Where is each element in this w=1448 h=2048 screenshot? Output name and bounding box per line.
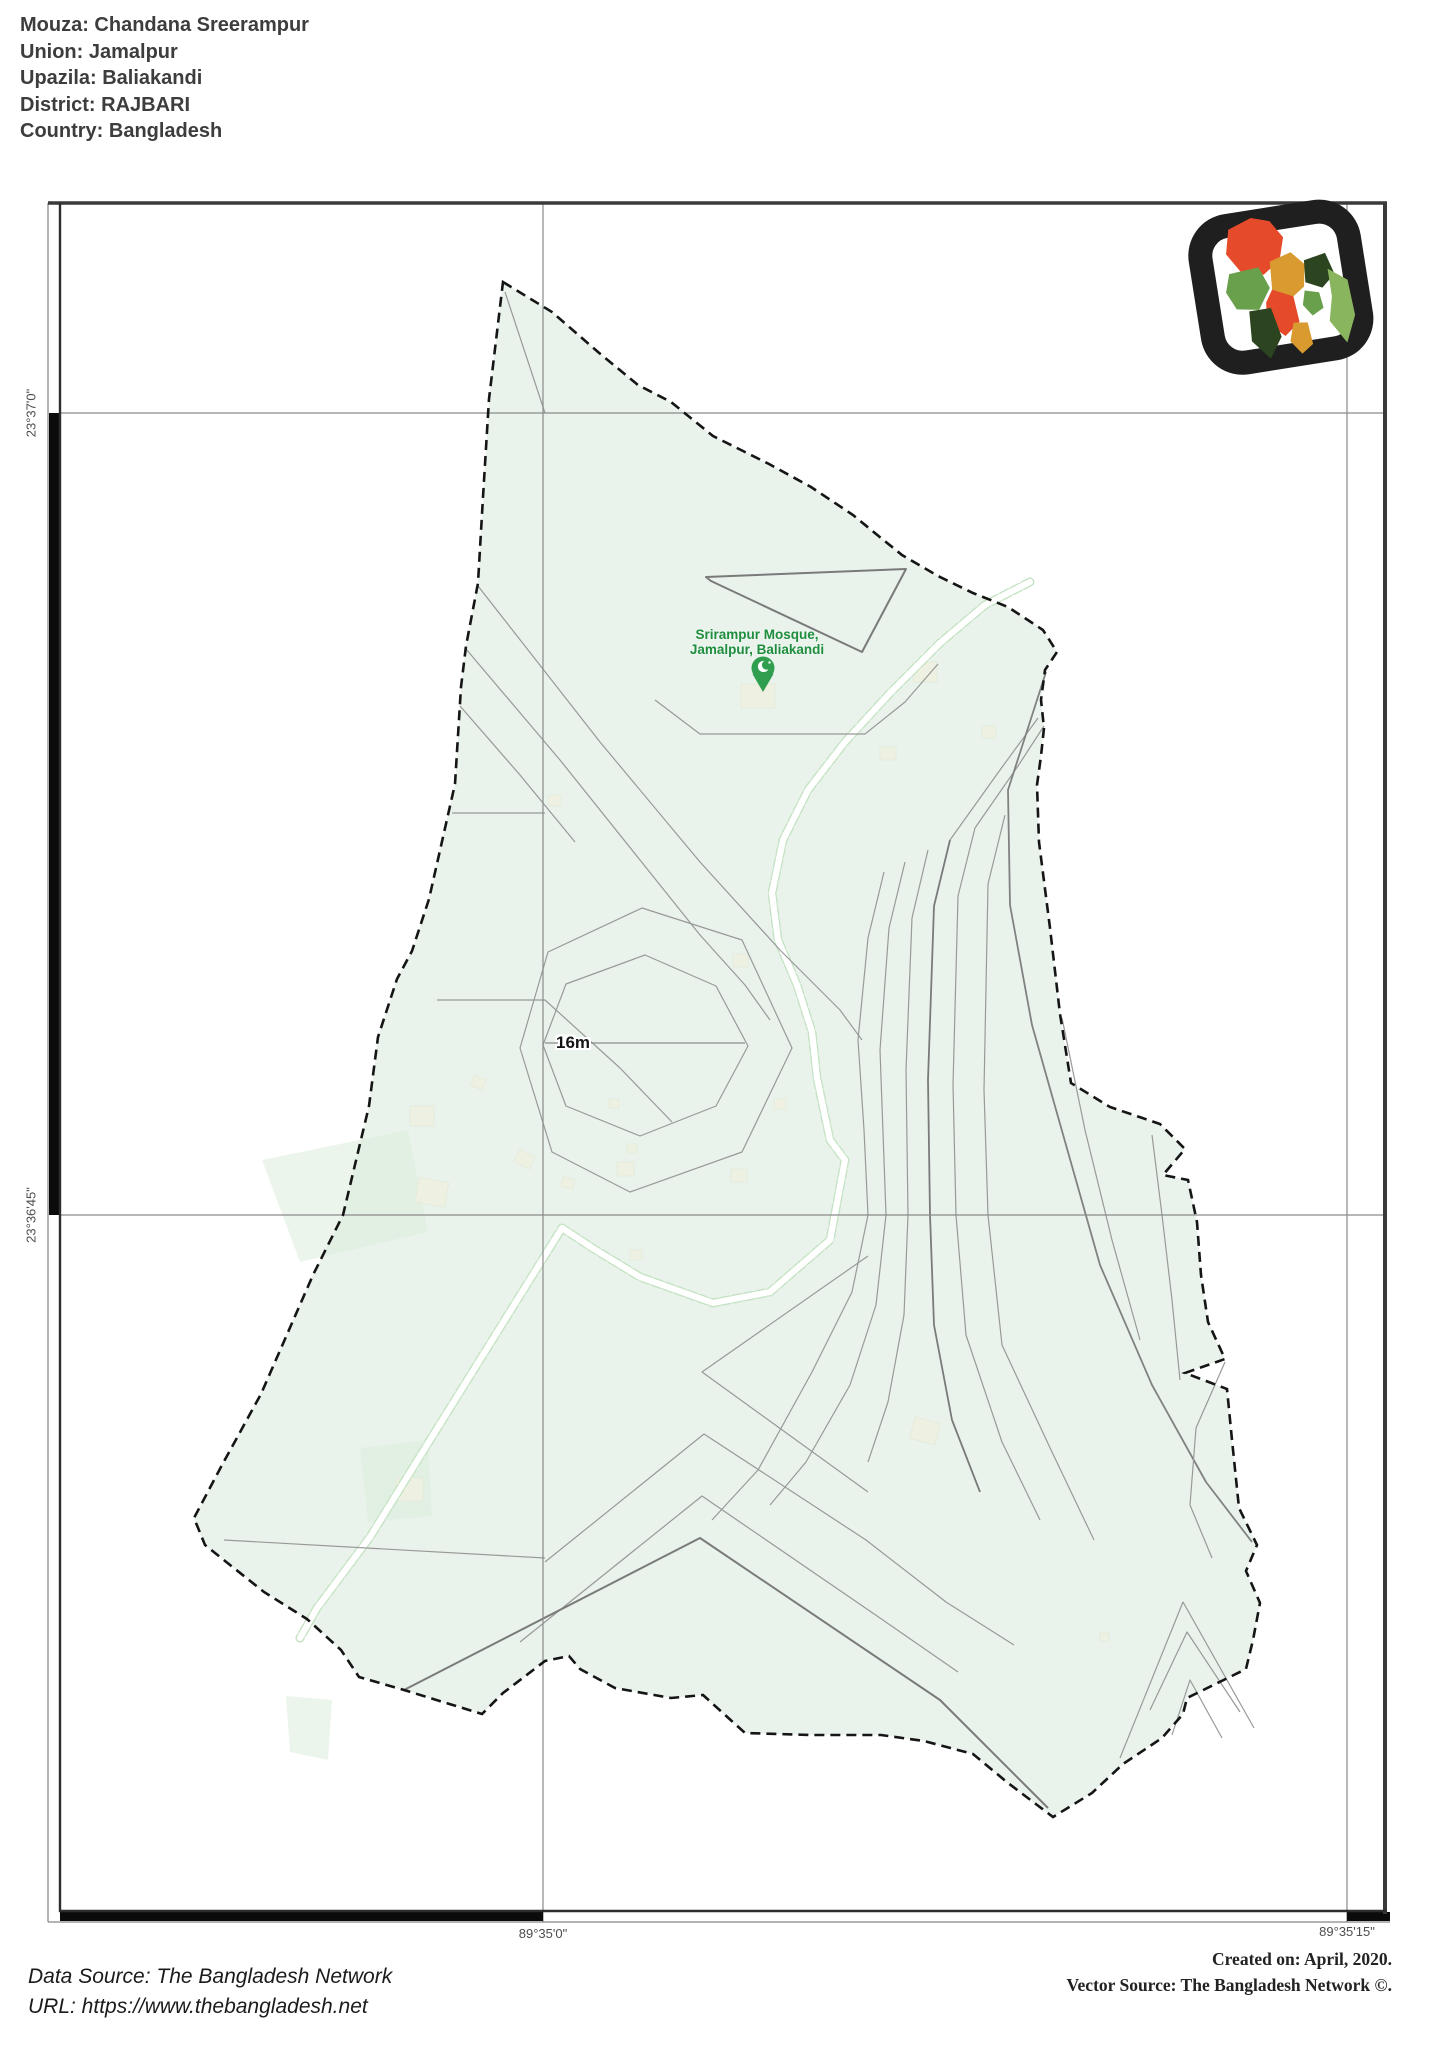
data-source-block: Data Source: The Bangladesh Network URL:… xyxy=(28,1962,392,2022)
mouza-polygon xyxy=(194,282,1260,1817)
map-sheet: { "header": { "lines": [ "Mouza: Chandan… xyxy=(0,0,1448,2048)
data-source-line: Data Source: The Bangladesh Network xyxy=(28,1962,392,1992)
title-line-upazila: Upazila: Baliakandi xyxy=(20,65,309,92)
map-title-block: Mouza: Chandana Sreerampur Union: Jamalp… xyxy=(20,12,309,145)
title-line-mouza: Mouza: Chandana Sreerampur xyxy=(20,12,309,39)
url-line: URL: https://www.thebangladesh.net xyxy=(28,1992,392,2022)
lat-label-23-36-45: 23°36'45" xyxy=(24,1187,39,1243)
title-line-district: District: RAJBARI xyxy=(20,92,309,119)
lon-label-89-35-0: 89°35'0" xyxy=(519,1926,567,1941)
title-line-union: Union: Jamalpur xyxy=(20,39,309,66)
lat-label-23-37-0: 23°37'0" xyxy=(24,389,39,437)
title-line-country: Country: Bangladesh xyxy=(20,118,309,145)
lon-label-89-35-15: 89°35'15" xyxy=(1319,1924,1375,1939)
bangladesh-logo xyxy=(1195,203,1365,367)
mosque-label-line2: Jamalpur, Baliakandi xyxy=(690,643,824,658)
map-canvas xyxy=(0,0,1448,2048)
mosque-label-line1: Srirampur Mosque, xyxy=(690,628,824,643)
vector-source-line: Vector Source: The Bangladesh Network ©. xyxy=(1067,1972,1393,1998)
credits-block: Created on: April, 2020. Vector Source: … xyxy=(1067,1946,1393,1998)
created-on-line: Created on: April, 2020. xyxy=(1067,1946,1393,1972)
mosque-label: Srirampur Mosque, Jamalpur, Baliakandi xyxy=(690,628,824,657)
contour-elevation-label: 16m xyxy=(556,1033,590,1053)
